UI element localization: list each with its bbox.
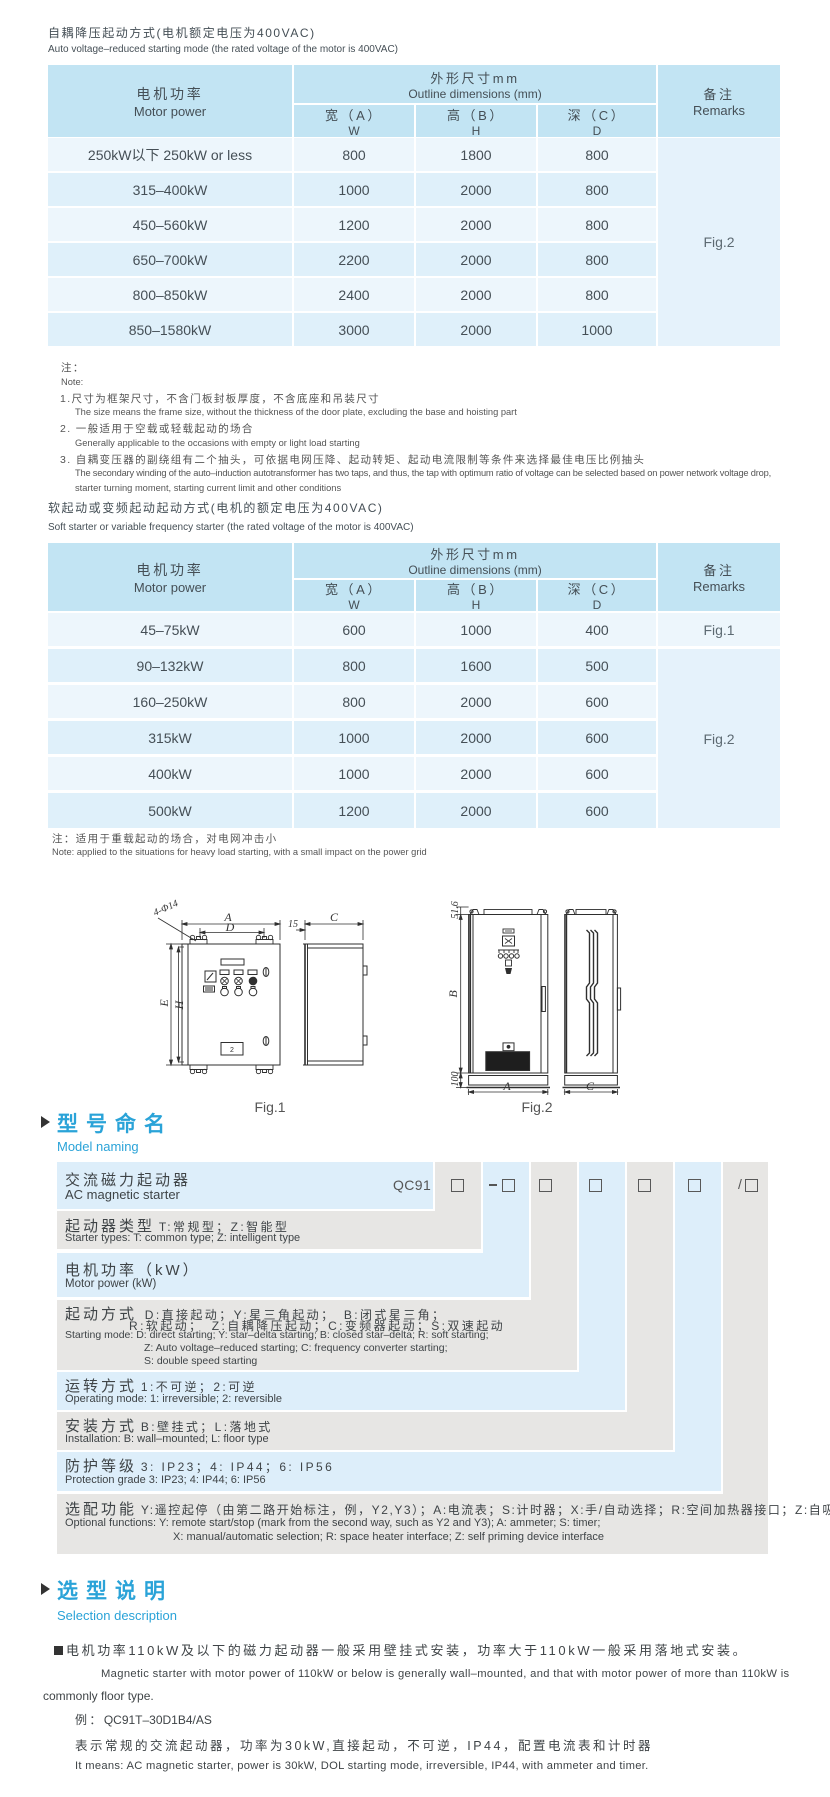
svg-text:Fig.2: Fig.2 <box>521 1099 552 1115</box>
svg-text:E: E <box>157 999 171 1008</box>
svg-text:15: 15 <box>288 919 298 930</box>
svg-text:D: D <box>225 920 235 934</box>
svg-text:A: A <box>502 1079 511 1093</box>
svg-text:100: 100 <box>450 1072 461 1087</box>
svg-text:B: B <box>446 990 460 998</box>
svg-text:2: 2 <box>230 1047 234 1054</box>
svg-text:51.6: 51.6 <box>450 901 461 919</box>
svg-text:H: H <box>172 999 186 1010</box>
svg-text:4-Φ14: 4-Φ14 <box>152 898 180 919</box>
svg-text:C: C <box>330 910 339 924</box>
svg-text:C: C <box>586 1079 595 1093</box>
svg-text:Fig.1: Fig.1 <box>254 1099 285 1115</box>
